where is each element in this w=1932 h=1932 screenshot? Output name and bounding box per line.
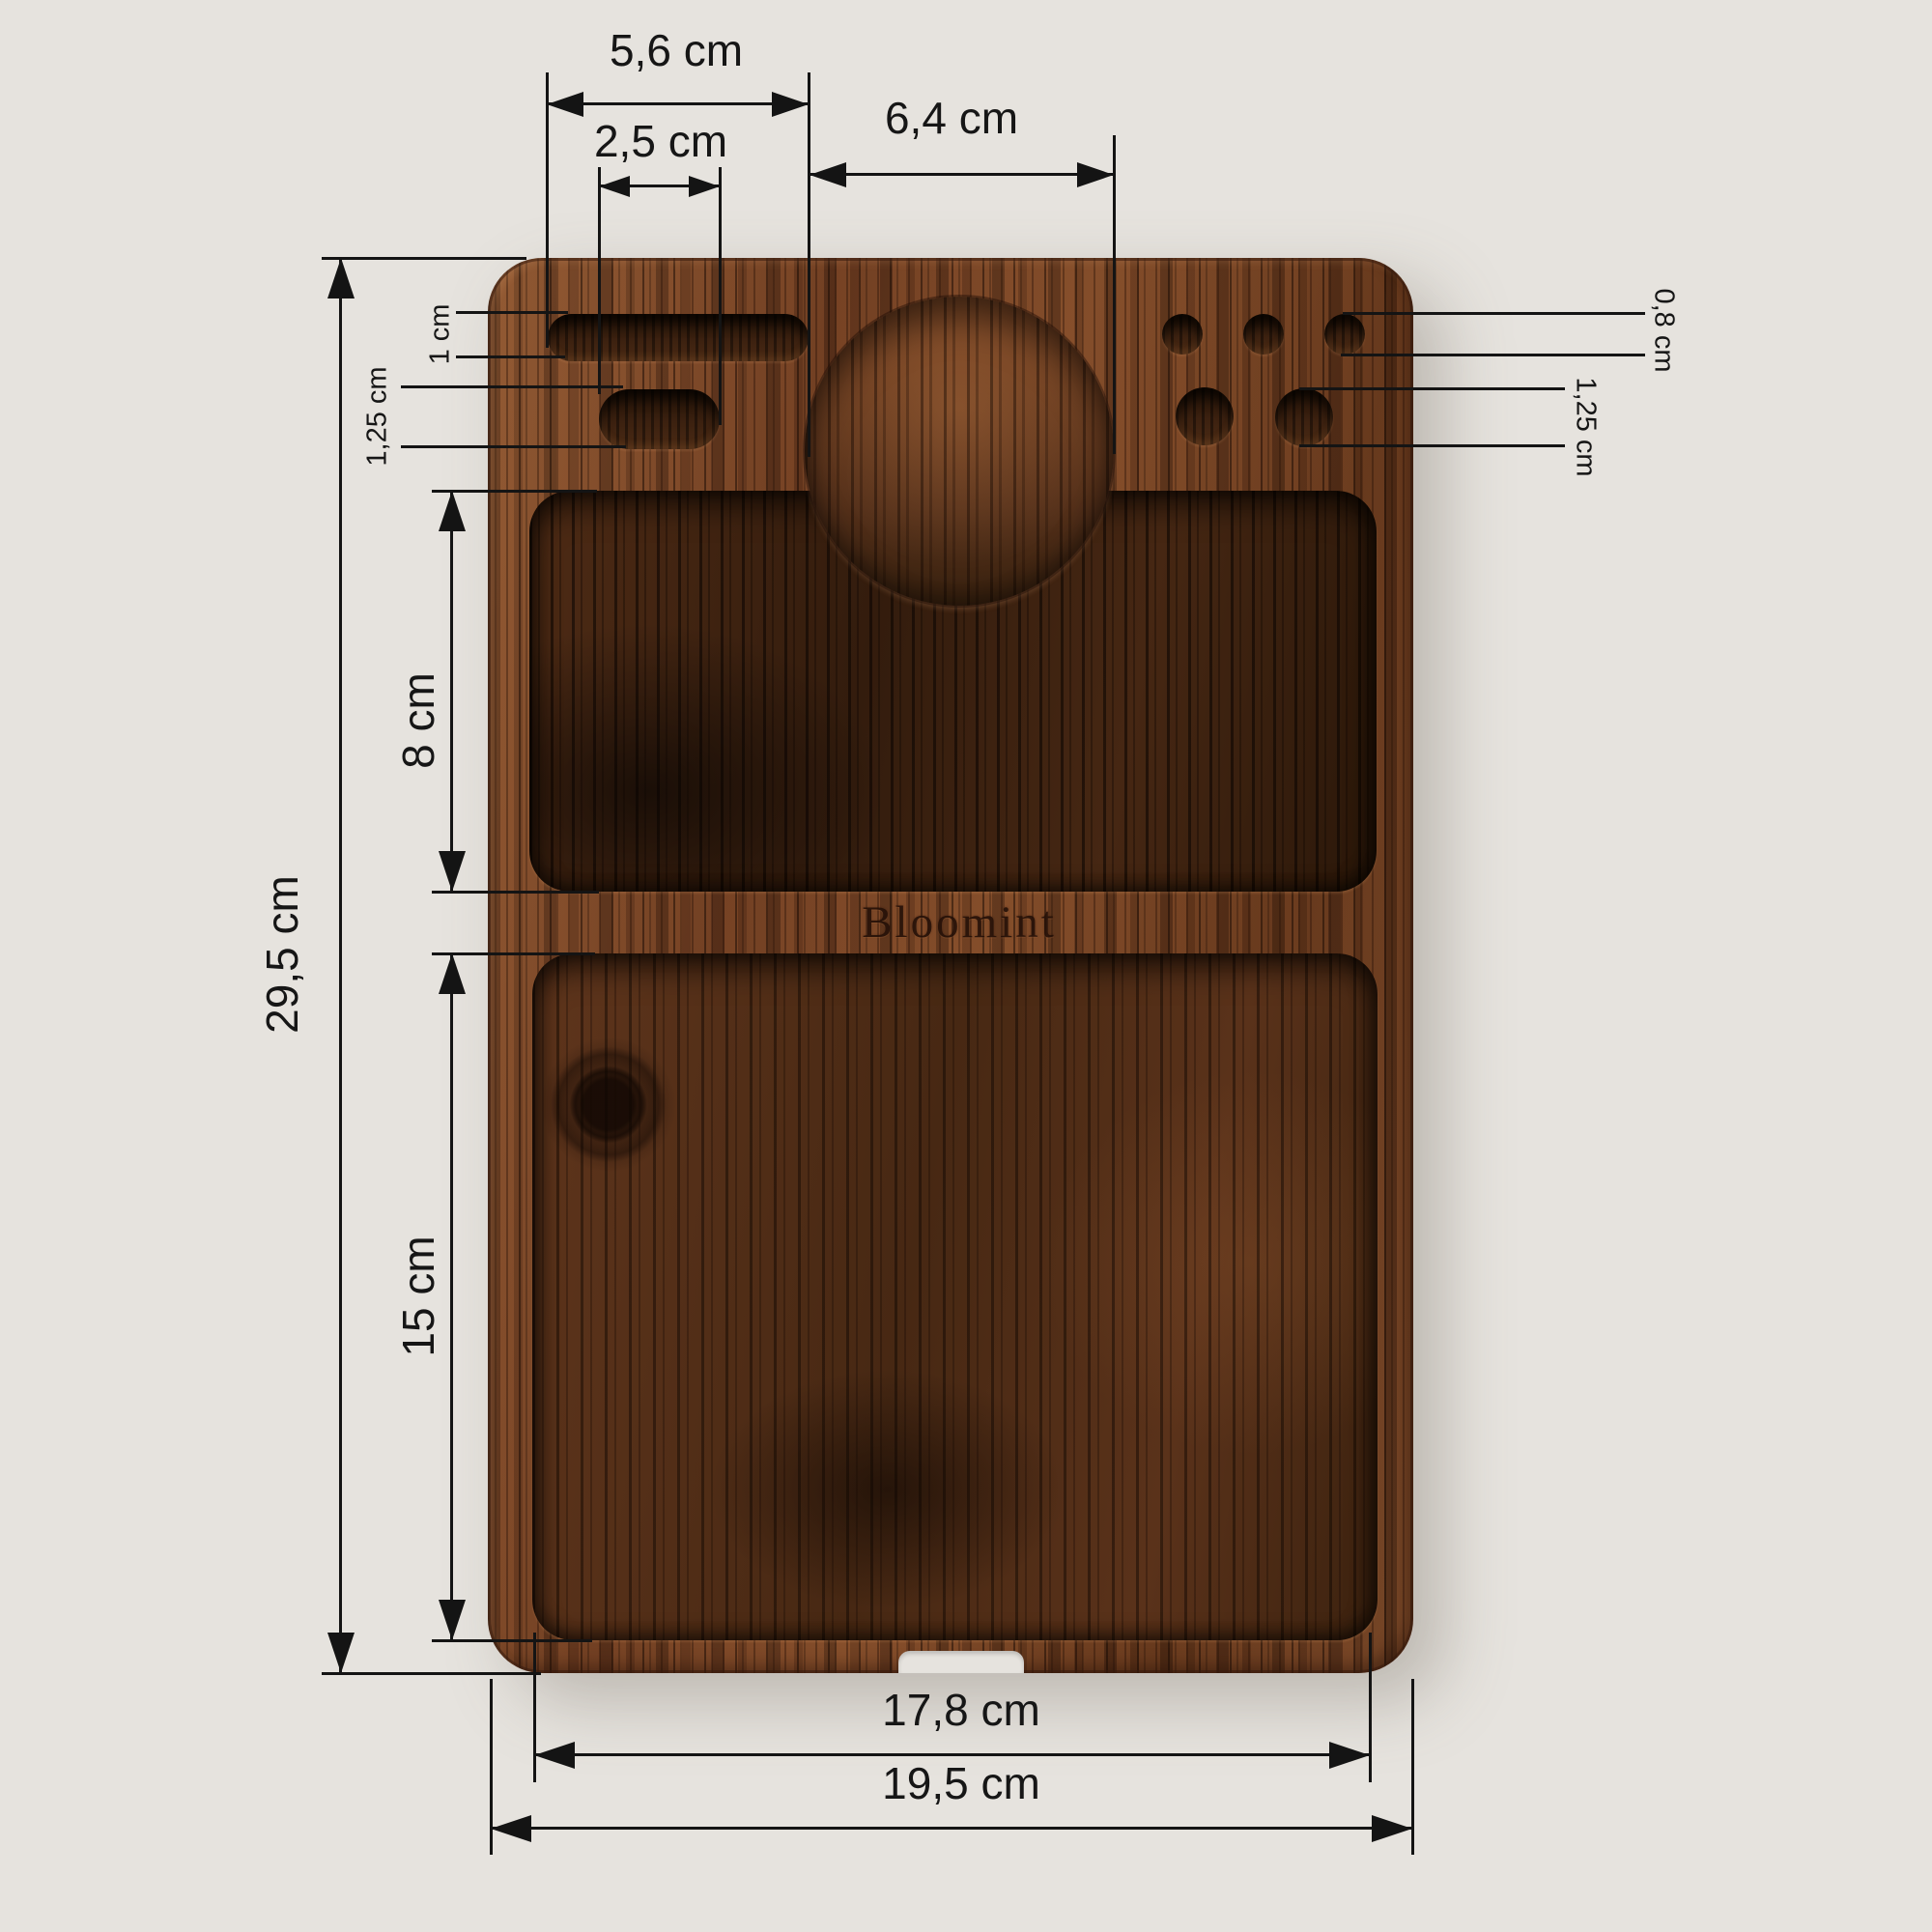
dimension-line [547,102,809,105]
dim-label-inner-recess-width: 17,8 cm [882,1684,1040,1736]
arrowhead-up [327,258,355,298]
leader-line [1341,354,1645,356]
dimension-line [810,173,1114,176]
leader-line [1299,444,1565,447]
arrowhead-right [1077,162,1114,187]
large-hole-2 [1275,388,1333,446]
arrowhead-down [439,1600,466,1640]
arrowhead-left [534,1742,575,1769]
large-hole-1 [1176,387,1234,445]
dim-label-long-slot-width: 5,6 cm [610,24,743,76]
arrowhead-down [439,851,466,892]
extension-line [598,167,601,394]
dimension-line [491,1827,1412,1830]
arrowhead-down [327,1633,355,1673]
leader-line [456,355,565,358]
dim-label-short-slot-height: 1,25 cm [362,366,394,466]
bottom-notch [898,1651,1024,1673]
dimension-line [450,491,453,892]
small-hole-3 [1324,314,1365,355]
arrowhead-up [439,953,466,994]
dimension-line [450,953,453,1640]
arrowhead-right [689,176,720,197]
leader-line [1299,387,1565,390]
wooden-tray-board: Bloomint [488,258,1413,1673]
dim-label-upper-recess-height: 8 cm [392,672,444,769]
dim-label-small-hole-diameter: 0,8 cm [1648,288,1680,372]
small-hole-2 [1243,314,1284,355]
arrowhead-right [1329,1742,1370,1769]
extension-line [322,1672,541,1675]
leader-line [401,385,623,388]
arrowhead-up [439,491,466,531]
arrowhead-left [599,176,630,197]
leader-line [456,311,568,314]
arrowhead-right [1372,1815,1412,1842]
product-dimension-diagram: Bloomint 5,6 cm 2,5 cm 6,4 [0,0,1932,1932]
dim-label-lower-recess-height: 15 cm [392,1236,444,1356]
long-slot [548,314,809,361]
round-grinder-recess [805,297,1114,606]
dim-label-short-slot-width: 2,5 cm [594,115,727,167]
extension-line [808,72,810,457]
dim-label-board-width: 19,5 cm [882,1757,1040,1809]
lower-recess [532,953,1378,1640]
dim-label-large-hole-diameter: 1,25 cm [1570,377,1602,476]
short-slot [599,389,720,449]
dim-label-long-slot-height: 1 cm [425,304,457,365]
leader-line [1343,312,1645,315]
brand-logo: Bloomint [862,896,1057,949]
extension-line [719,167,722,425]
arrowhead-left [547,92,583,117]
dim-label-board-height: 29,5 cm [256,875,308,1034]
arrowhead-left [810,162,846,187]
small-hole-1 [1162,314,1203,355]
leader-line [401,445,626,448]
dimension-line [534,1753,1370,1756]
dim-label-round-recess-diameter: 6,4 cm [885,92,1018,144]
arrowhead-right [772,92,809,117]
arrowhead-left [491,1815,531,1842]
dimension-line [339,258,342,1673]
